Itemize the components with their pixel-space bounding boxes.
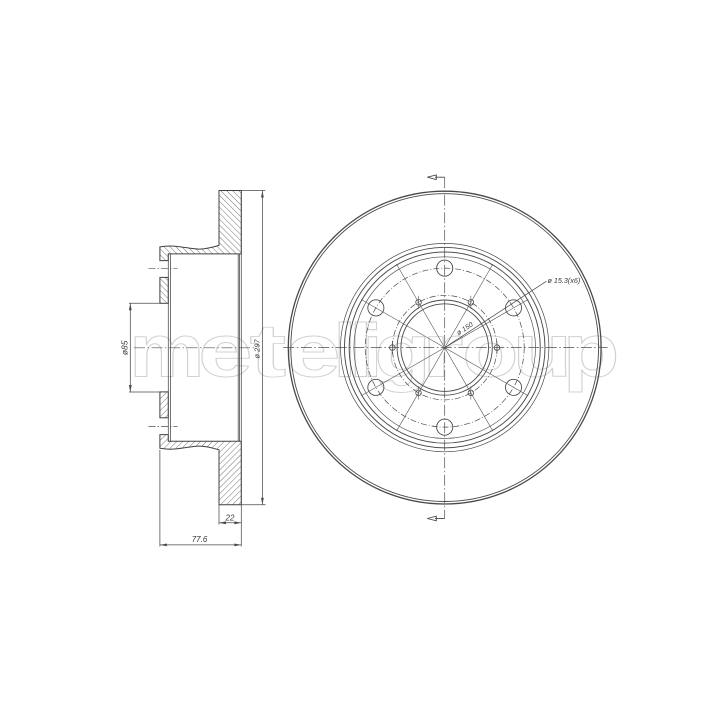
svg-text:ø 15.3(x6): ø 15.3(x6) bbox=[548, 276, 581, 285]
svg-text:ø 297: ø 297 bbox=[252, 338, 261, 358]
svg-text:p: p bbox=[563, 309, 620, 393]
svg-text:e: e bbox=[198, 309, 252, 392]
svg-text:77.6: 77.6 bbox=[192, 535, 208, 544]
svg-text:22: 22 bbox=[225, 514, 235, 523]
svg-text:m: m bbox=[129, 309, 204, 393]
svg-text:ø85: ø85 bbox=[119, 340, 129, 355]
